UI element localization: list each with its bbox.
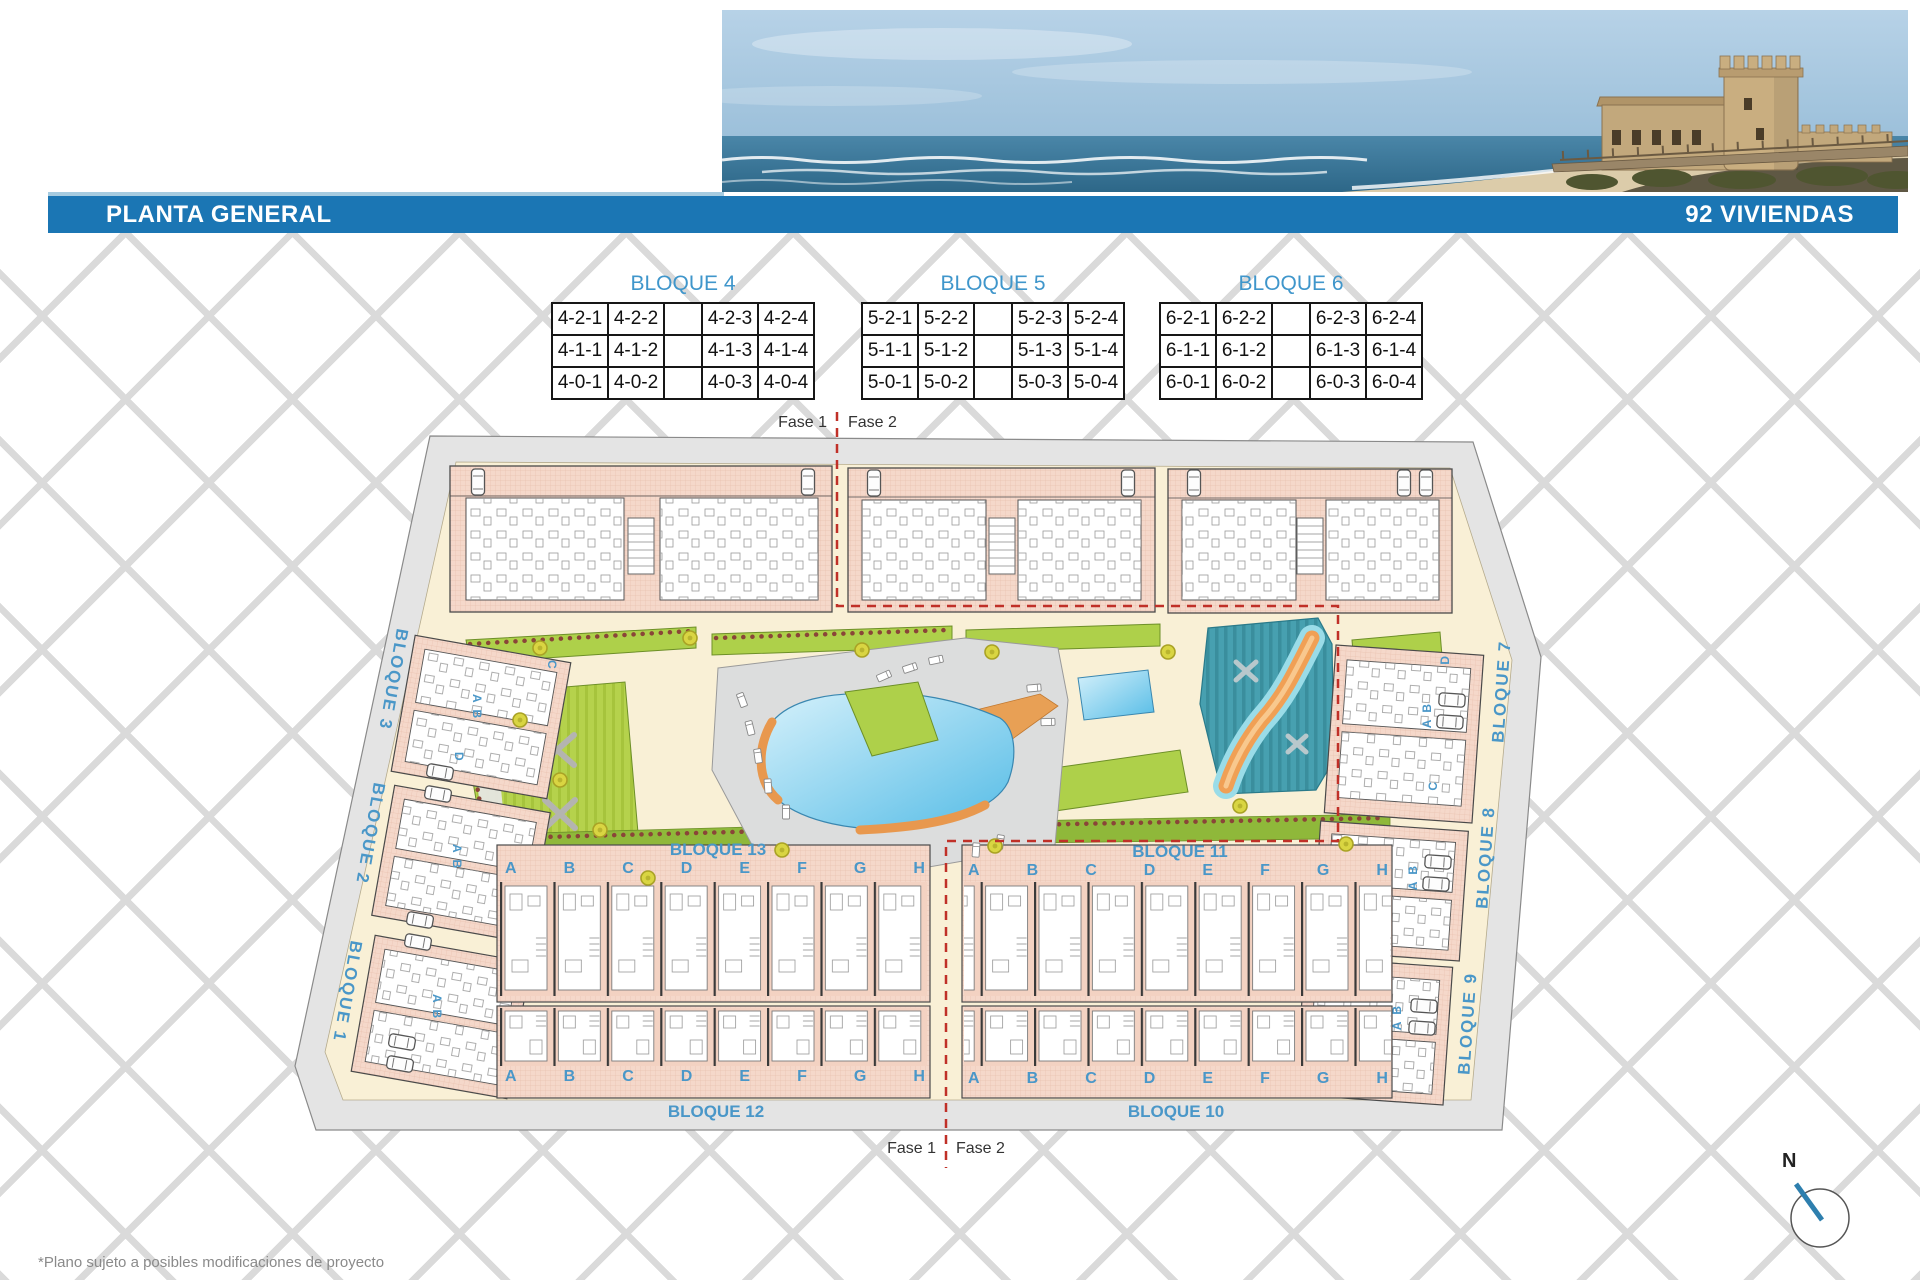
unit-cell: 4-1-3 <box>703 336 757 366</box>
bloque12-label: BLOQUE 12 <box>596 1102 836 1122</box>
unit-cell: 6-2-1 <box>1161 304 1215 334</box>
unit-letter-row-bloque11: ABCDEFGH <box>968 862 1388 880</box>
unit-cell: 5-0-4 <box>1069 368 1123 398</box>
unit-cell: 6-0-3 <box>1311 368 1365 398</box>
unit-letter: G <box>854 1068 866 1086</box>
unit-letter: D <box>1144 862 1156 880</box>
unit-letter: C <box>622 1068 634 1086</box>
bloque5-grid: 5-2-15-2-25-2-35-2-45-1-15-1-25-1-35-1-4… <box>861 302 1125 400</box>
unit-cell: 4-0-1 <box>553 368 607 398</box>
unit-cell <box>665 336 701 366</box>
unit-cell: 6-1-2 <box>1217 336 1271 366</box>
unit-letter: A <box>505 860 517 878</box>
total-units-label: 92 VIVIENDAS <box>1685 201 1898 229</box>
unit-letter: G <box>1317 1070 1329 1088</box>
bloque6-building <box>1168 469 1452 613</box>
unit-cell: 4-1-4 <box>759 336 813 366</box>
fase1-label-bottom: Fase 1 <box>830 1140 936 1158</box>
unit-letter-row-bloque13: ABCDEFGH <box>505 860 925 878</box>
unit-cell: 5-1-2 <box>919 336 973 366</box>
title-bar: PLANTA GENERAL 92 VIVIENDAS <box>48 196 1898 233</box>
unit-cell: 5-1-4 <box>1069 336 1123 366</box>
unit-cell: 4-0-3 <box>703 368 757 398</box>
unit-letter: D <box>681 860 693 878</box>
bloque9-unit-letters: A B <box>1390 1004 1404 1030</box>
unit-letter: H <box>913 1068 925 1086</box>
unit-cell: 5-1-1 <box>863 336 917 366</box>
unit-letter: D <box>1144 1070 1156 1088</box>
bloque4-table: BLOQUE 4 4-2-14-2-24-2-34-2-44-1-14-1-24… <box>551 272 815 400</box>
unit-letter: G <box>1317 862 1329 880</box>
bloque6-table: BLOQUE 6 6-2-16-2-26-2-36-2-46-1-16-1-26… <box>1159 272 1423 400</box>
unit-cell: 5-2-4 <box>1069 304 1123 334</box>
bloque4-grid: 4-2-14-2-24-2-34-2-44-1-14-1-24-1-34-1-4… <box>551 302 815 400</box>
unit-letter: D <box>681 1068 693 1086</box>
unit-cell: 5-0-3 <box>1013 368 1067 398</box>
cloud <box>752 28 1132 60</box>
side-letter-d-right: D <box>1438 654 1452 665</box>
bloque6-grid: 6-2-16-2-26-2-36-2-46-1-16-1-26-1-36-1-4… <box>1159 302 1423 400</box>
bloque5-table-title: BLOQUE 5 <box>861 272 1125 298</box>
page: PLANTA GENERAL 92 VIVIENDAS BLOQUE 4 4-2… <box>0 0 1920 1280</box>
unit-cell: 6-0-2 <box>1217 368 1271 398</box>
unit-letter-row-bloque12: ABCDEFGH <box>505 1068 925 1086</box>
disclaimer-note: *Plano sujeto a posibles modificaciones … <box>38 1254 384 1271</box>
bloque5-table: BLOQUE 5 5-2-15-2-25-2-35-2-45-1-15-1-25… <box>861 272 1125 400</box>
unit-cell: 6-2-4 <box>1367 304 1421 334</box>
unit-cell <box>975 336 1011 366</box>
compass <box>1760 1148 1870 1258</box>
unit-letter: F <box>797 1068 807 1086</box>
unit-letter: F <box>1260 862 1270 880</box>
unit-letter: E <box>1202 1070 1213 1088</box>
unit-letter: E <box>1202 862 1213 880</box>
bloque4-table-title: BLOQUE 4 <box>551 272 815 298</box>
unit-cell <box>665 304 701 334</box>
unit-cell: 4-1-2 <box>609 336 663 366</box>
second-pool <box>1078 670 1154 720</box>
splash-park <box>1200 618 1334 794</box>
bloque2-unit-letters: A B <box>450 844 464 870</box>
bloque1-unit-letters: A B <box>430 994 444 1020</box>
unit-cell <box>1273 336 1309 366</box>
bloque8-unit-letters: A B <box>1406 864 1420 890</box>
unit-letter: C <box>1085 862 1097 880</box>
unit-cell: 6-2-3 <box>1311 304 1365 334</box>
header-beach-photo <box>722 10 1908 192</box>
fase1-label-top: Fase 1 <box>735 414 827 432</box>
unit-letter: E <box>739 1068 750 1086</box>
unit-letter: C <box>1085 1070 1097 1088</box>
unit-cell: 4-1-1 <box>553 336 607 366</box>
unit-cell: 5-2-1 <box>863 304 917 334</box>
bloque10-label: BLOQUE 10 <box>1056 1102 1296 1122</box>
side-letter-c: C <box>545 660 559 671</box>
unit-cell: 5-2-2 <box>919 304 973 334</box>
side-letter-d: D <box>452 752 466 763</box>
unit-letter: A <box>505 1068 517 1086</box>
unit-cell: 4-0-2 <box>609 368 663 398</box>
unit-cell: 5-0-2 <box>919 368 973 398</box>
fase2-label-top: Fase 2 <box>848 414 897 432</box>
unit-letter: B <box>564 860 576 878</box>
unit-cell: 6-2-2 <box>1217 304 1271 334</box>
unit-letter: B <box>1027 1070 1039 1088</box>
unit-cell: 4-0-4 <box>759 368 813 398</box>
unit-cell <box>1273 368 1309 398</box>
bloque11-label: BLOQUE 11 <box>1060 842 1300 862</box>
unit-letter: H <box>1376 862 1388 880</box>
unit-letter: H <box>913 860 925 878</box>
unit-letter: B <box>1027 862 1039 880</box>
side-letter-c-right: C <box>1426 780 1440 791</box>
unit-letter: B <box>564 1068 576 1086</box>
unit-letter: H <box>1376 1070 1388 1088</box>
unit-cell: 6-1-1 <box>1161 336 1215 366</box>
bloque7-building <box>1324 645 1483 823</box>
page-title: PLANTA GENERAL <box>48 201 332 229</box>
cloud <box>1012 60 1472 84</box>
bloque7-unit-letters: A B <box>1420 702 1434 728</box>
bloque3-unit-letters: A B <box>470 694 484 720</box>
unit-cell: 4-2-3 <box>703 304 757 334</box>
unit-cell <box>1273 304 1309 334</box>
bloque13-label: BLOQUE 13 <box>598 840 838 860</box>
unit-cell <box>975 368 1011 398</box>
unit-letter: C <box>622 860 634 878</box>
unit-letter: G <box>854 860 866 878</box>
unit-cell: 6-1-4 <box>1367 336 1421 366</box>
unit-letter: F <box>1260 1070 1270 1088</box>
unit-cell: 4-2-1 <box>553 304 607 334</box>
bloque6-table-title: BLOQUE 6 <box>1159 272 1423 298</box>
bloque4-building <box>450 466 832 612</box>
unit-cell: 4-2-4 <box>759 304 813 334</box>
unit-letter: A <box>968 862 980 880</box>
unit-cell: 6-1-3 <box>1311 336 1365 366</box>
compass-north-label: N <box>1782 1150 1796 1173</box>
unit-cell: 5-2-3 <box>1013 304 1067 334</box>
unit-cell: 6-0-1 <box>1161 368 1215 398</box>
unit-cell: 5-1-3 <box>1013 336 1067 366</box>
bloque5-building <box>848 468 1155 612</box>
unit-cell <box>665 368 701 398</box>
unit-letter: F <box>797 860 807 878</box>
unit-letter: E <box>739 860 750 878</box>
unit-letter: A <box>968 1070 980 1088</box>
unit-cell <box>975 304 1011 334</box>
unit-letter-row-bloque10: ABCDEFGH <box>968 1070 1388 1088</box>
unit-cell: 6-0-4 <box>1367 368 1421 398</box>
unit-cell: 5-0-1 <box>863 368 917 398</box>
fase2-label-bottom: Fase 2 <box>956 1140 1005 1158</box>
unit-cell: 4-2-2 <box>609 304 663 334</box>
